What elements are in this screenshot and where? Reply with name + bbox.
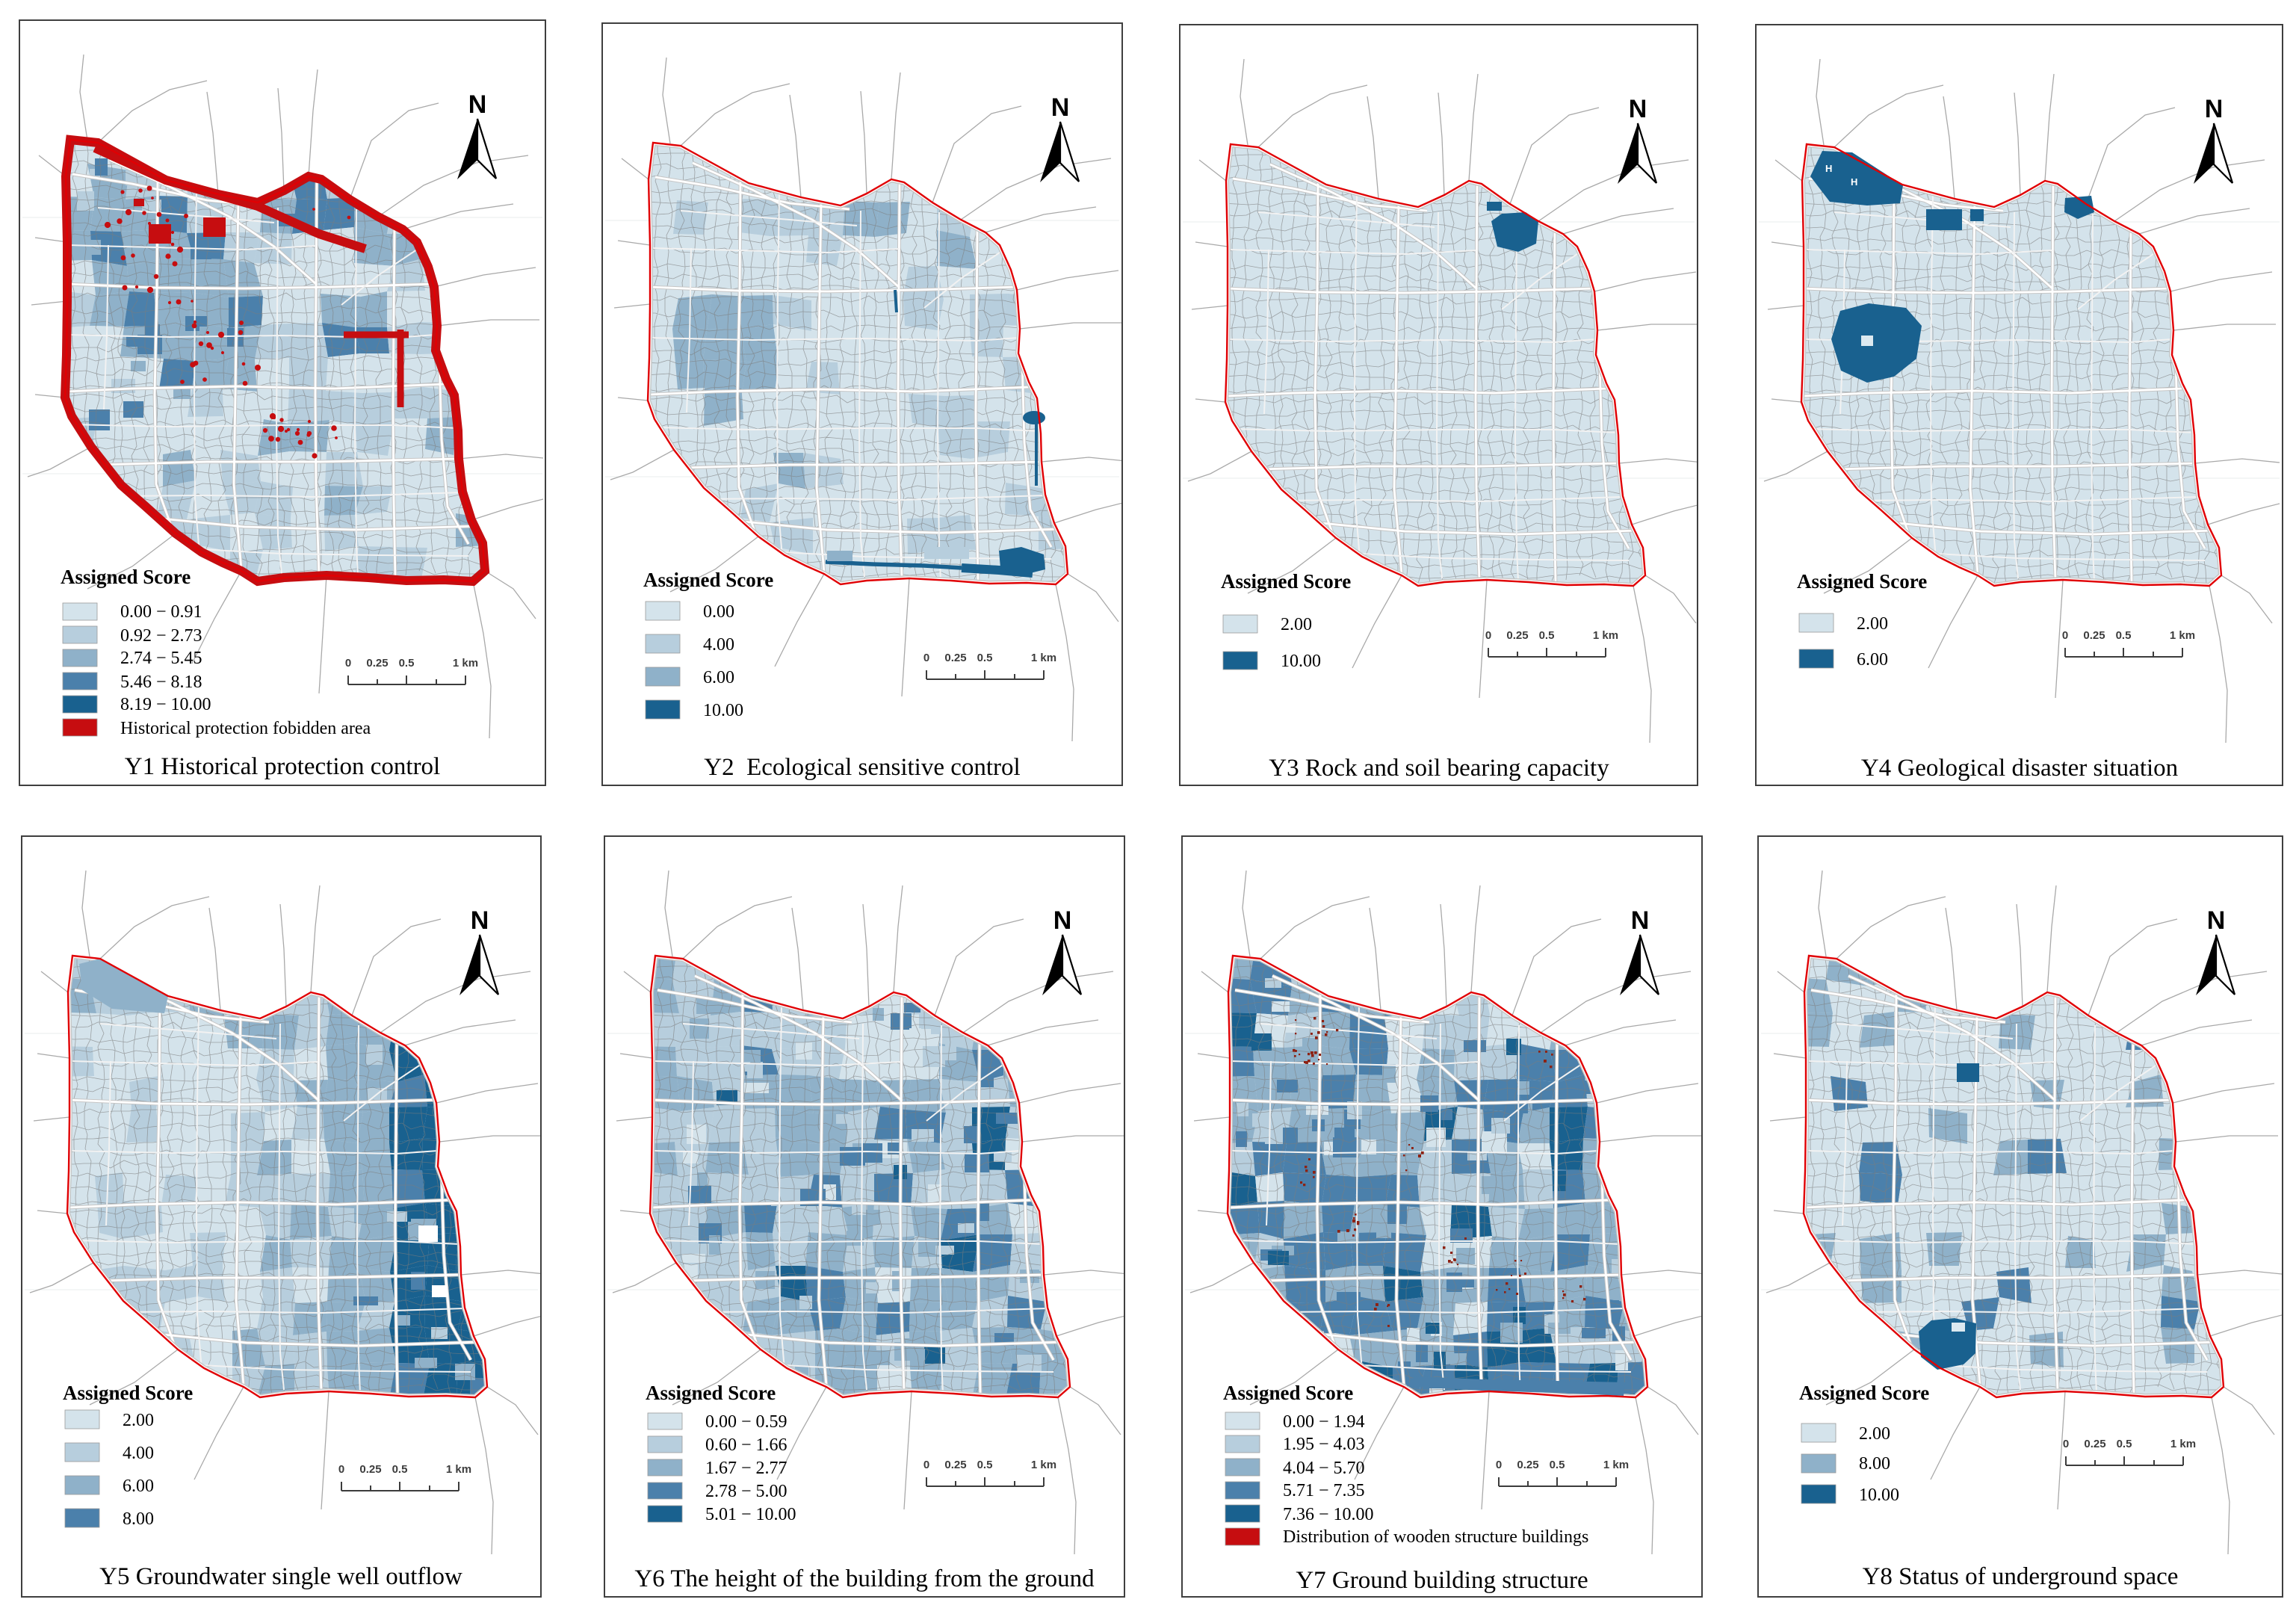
svg-text:Y4 Geological disaster situati: Y4 Geological disaster situation: [1861, 755, 2178, 782]
svg-text:2.00: 2.00: [1281, 615, 1312, 634]
svg-text:6.00: 6.00: [123, 1477, 154, 1496]
svg-text:2.74 − 5.45: 2.74 − 5.45: [120, 649, 202, 668]
svg-text:Assigned Score: Assigned Score: [63, 1382, 193, 1404]
svg-text:0.00 − 0.91: 0.00 − 0.91: [120, 602, 202, 622]
svg-text:0.00 − 1.94: 0.00 − 1.94: [1283, 1412, 1365, 1432]
svg-text:10.00: 10.00: [1281, 652, 1321, 671]
svg-text:2.00: 2.00: [123, 1411, 154, 1430]
svg-text:4.00: 4.00: [123, 1444, 154, 1463]
svg-text:5.01 − 10.00: 5.01 − 10.00: [705, 1505, 796, 1524]
svg-text:Y5 Groundwater single well out: Y5 Groundwater single well outflow: [99, 1563, 462, 1590]
svg-text:4.04 − 5.70: 4.04 − 5.70: [1283, 1459, 1365, 1478]
svg-text:Assigned Score: Assigned Score: [61, 566, 191, 588]
svg-text:0.92 − 2.73: 0.92 − 2.73: [120, 626, 202, 646]
svg-text:Assigned Score: Assigned Score: [1797, 570, 1927, 593]
svg-text:6.00: 6.00: [1857, 650, 1888, 670]
svg-text:8.00: 8.00: [1859, 1454, 1890, 1474]
svg-text:Y1 Historical protection contr: Y1 Historical protection control: [125, 753, 440, 780]
svg-text:Y8 Status of underground space: Y8 Status of underground space: [1863, 1563, 2179, 1590]
svg-text:Distribution of wooden structu: Distribution of wooden structure buildin…: [1283, 1527, 1588, 1547]
svg-text:Assigned Score: Assigned Score: [646, 1382, 776, 1404]
svg-text:5.71 − 7.35: 5.71 − 7.35: [1283, 1481, 1365, 1500]
svg-text:Assigned Score: Assigned Score: [643, 569, 773, 591]
svg-text:Assigned Score: Assigned Score: [1799, 1382, 1929, 1404]
svg-text:2.00: 2.00: [1857, 614, 1888, 634]
svg-text:Assigned Score: Assigned Score: [1221, 570, 1351, 593]
svg-text:10.00: 10.00: [1859, 1485, 1899, 1505]
svg-text:0.00: 0.00: [703, 602, 734, 622]
svg-text:0.00 − 0.59: 0.00 − 0.59: [705, 1412, 787, 1432]
svg-text:Assigned Score: Assigned Score: [1223, 1382, 1353, 1404]
svg-text:Historical protection fobidden: Historical protection fobidden area: [120, 719, 371, 738]
svg-text:1.95 − 4.03: 1.95 − 4.03: [1283, 1435, 1365, 1454]
svg-text:7.36 − 10.00: 7.36 − 10.00: [1283, 1505, 1374, 1524]
svg-text:1.67 − 2.77: 1.67 − 2.77: [705, 1459, 787, 1478]
svg-text:4.00: 4.00: [703, 635, 734, 655]
svg-text:2.78 − 5.00: 2.78 − 5.00: [705, 1482, 787, 1501]
svg-text:8.00: 8.00: [123, 1509, 154, 1529]
svg-text:5.46 − 8.18: 5.46 − 8.18: [120, 673, 202, 692]
svg-text:Y6 The height of the building: Y6 The height of the building from the g…: [634, 1565, 1095, 1592]
svg-text:H: H: [1851, 176, 1857, 188]
svg-text:2.00: 2.00: [1859, 1424, 1890, 1444]
svg-text:0.60 − 1.66: 0.60 − 1.66: [705, 1435, 787, 1455]
svg-text:8.19 − 10.00: 8.19 − 10.00: [120, 695, 211, 714]
svg-text:Y2 Ecological sensitive contr: Y2 Ecological sensitive control: [704, 754, 1020, 781]
svg-text:6.00: 6.00: [703, 668, 734, 687]
svg-text:Y7 Ground building structure: Y7 Ground building structure: [1296, 1567, 1588, 1594]
svg-text:10.00: 10.00: [703, 701, 743, 720]
svg-text:Y3 Rock and soil bearing capac: Y3 Rock and soil bearing capacity: [1269, 755, 1609, 782]
svg-text:H: H: [1825, 163, 1832, 174]
